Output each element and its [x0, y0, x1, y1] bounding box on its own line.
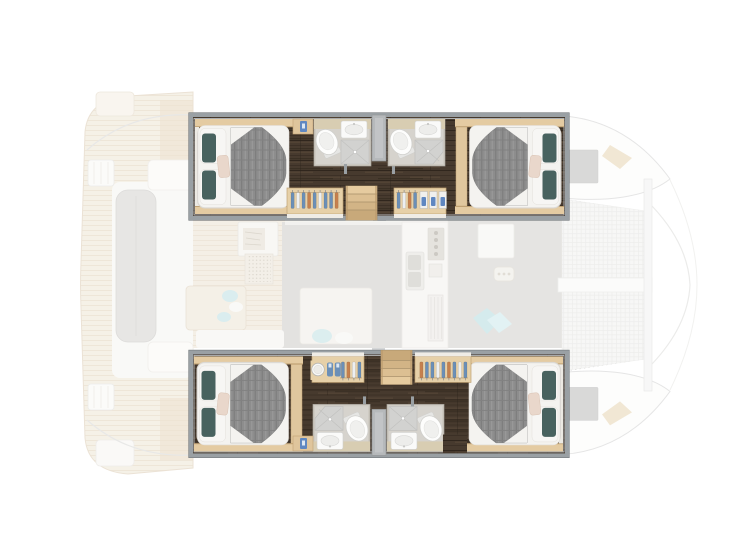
catwalk-beam — [558, 278, 652, 292]
saloon — [186, 216, 567, 353]
nightstand — [293, 436, 313, 451]
trampoline-net — [562, 199, 646, 279]
floorplan-canvas — [0, 0, 747, 560]
cockpit-table — [478, 224, 514, 258]
hull-starboard — [189, 350, 569, 457]
oven — [429, 264, 442, 277]
galley — [402, 222, 448, 348]
trampoline-net — [562, 291, 646, 371]
fridge — [428, 295, 443, 341]
transom-step — [96, 92, 134, 116]
transom-step — [96, 440, 134, 466]
saloon-settee — [300, 288, 372, 344]
cockpit-bench — [148, 160, 193, 190]
catamaran-floorplan — [0, 0, 747, 560]
bow-outline — [670, 180, 697, 390]
aft-cockpit — [81, 92, 194, 474]
forward-crossbeam — [644, 179, 652, 391]
cockpit-bench — [148, 342, 193, 372]
hull-port — [189, 113, 569, 220]
bow-rail — [652, 206, 690, 364]
wardrobe-accessories — [311, 361, 341, 381]
foredeck — [558, 116, 697, 454]
